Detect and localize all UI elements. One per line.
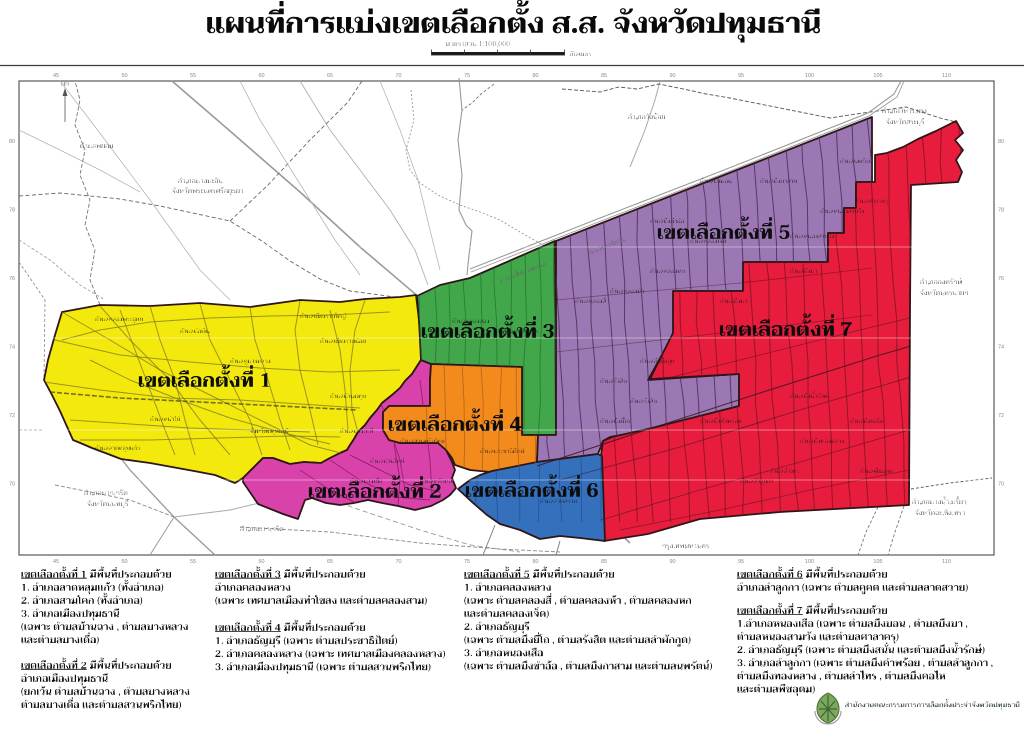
svg-text:50: 50 <box>121 73 127 79</box>
svg-text:70: 70 <box>395 559 401 565</box>
svg-text:105: 105 <box>873 559 882 565</box>
svg-text:100: 100 <box>805 559 814 565</box>
svg-text:65: 65 <box>327 559 333 565</box>
svg-text:95: 95 <box>738 73 744 79</box>
svg-text:70: 70 <box>998 482 1004 488</box>
svg-text:76: 76 <box>9 276 15 282</box>
svg-text:90: 90 <box>669 73 675 79</box>
svg-text:80: 80 <box>532 73 538 79</box>
svg-text:85: 85 <box>601 73 607 79</box>
svg-text:70: 70 <box>9 482 15 488</box>
svg-text:110: 110 <box>942 559 951 565</box>
svg-text:105: 105 <box>873 73 882 79</box>
svg-text:74: 74 <box>998 345 1004 351</box>
svg-text:70: 70 <box>395 73 401 79</box>
svg-text:76: 76 <box>998 276 1004 282</box>
svg-text:55: 55 <box>190 559 196 565</box>
svg-text:65: 65 <box>327 73 333 79</box>
svg-text:80: 80 <box>9 139 15 145</box>
svg-text:110: 110 <box>942 73 951 79</box>
svg-text:78: 78 <box>998 208 1004 214</box>
svg-text:85: 85 <box>601 559 607 565</box>
svg-text:80: 80 <box>532 559 538 565</box>
svg-text:95: 95 <box>738 559 744 565</box>
svg-text:72: 72 <box>998 413 1004 419</box>
svg-text:78: 78 <box>9 208 15 214</box>
svg-text:90: 90 <box>669 559 675 565</box>
svg-text:74: 74 <box>9 345 15 351</box>
svg-text:60: 60 <box>258 73 264 79</box>
svg-text:75: 75 <box>464 559 470 565</box>
svg-text:45: 45 <box>53 73 59 79</box>
svg-text:75: 75 <box>464 73 470 79</box>
svg-text:72: 72 <box>9 413 15 419</box>
svg-text:45: 45 <box>53 559 59 565</box>
svg-text:55: 55 <box>190 73 196 79</box>
svg-text:50: 50 <box>121 559 127 565</box>
svg-text:80: 80 <box>998 139 1004 145</box>
svg-text:100: 100 <box>805 73 814 79</box>
svg-text:60: 60 <box>258 559 264 565</box>
